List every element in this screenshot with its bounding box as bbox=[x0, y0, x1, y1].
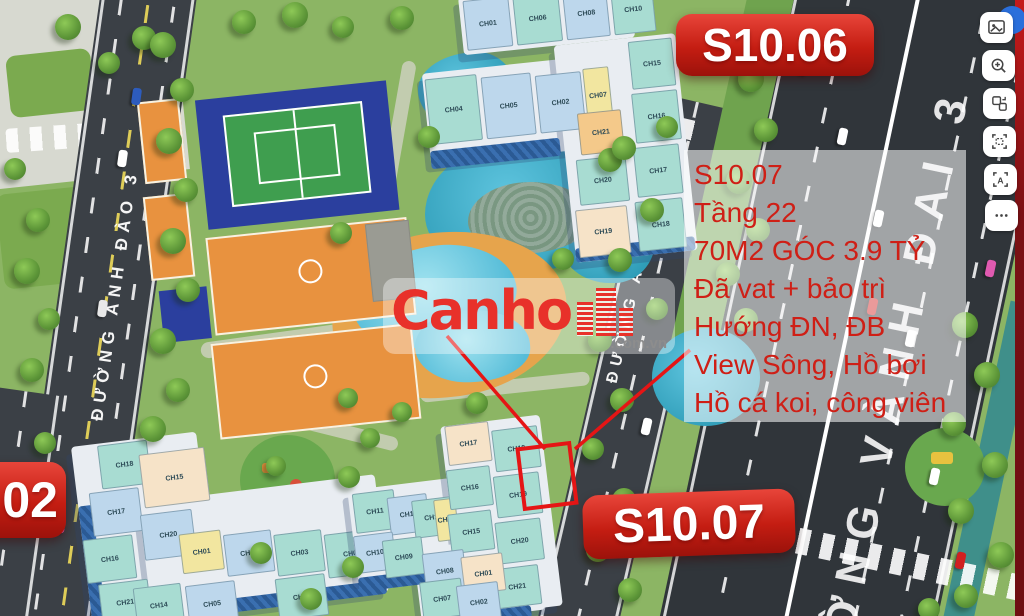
unit-cell[interactable]: CH01 bbox=[178, 529, 225, 574]
highlighted-unit-outline[interactable] bbox=[515, 441, 578, 511]
svg-text:A: A bbox=[997, 175, 1003, 185]
zoom-in-button[interactable] bbox=[982, 50, 1015, 81]
unit-cell[interactable]: CH21 bbox=[577, 109, 625, 155]
compare-tool-button[interactable] bbox=[983, 88, 1016, 119]
unit-cell[interactable]: CH19 bbox=[575, 205, 632, 258]
more-tools-button[interactable] bbox=[985, 200, 1018, 231]
info-line: Hồ cá koi, công viên bbox=[694, 384, 956, 422]
unit-cell[interactable]: CH06 bbox=[275, 573, 330, 616]
building-s10_06: CH01CH06CH08CH10CH04CH05CH02CH07CH21CH20… bbox=[414, 0, 697, 277]
watermark-buildings-icon bbox=[577, 288, 633, 336]
scan-tool-button[interactable] bbox=[983, 126, 1016, 157]
unit-cell[interactable]: CH03 bbox=[273, 529, 326, 577]
scan-icon bbox=[990, 132, 1009, 151]
unit-cell[interactable]: CH02 bbox=[223, 529, 276, 577]
unit-cell[interactable]: CH01 bbox=[462, 0, 513, 51]
unit-cell[interactable]: CH06 bbox=[512, 0, 563, 46]
banner-s10-06[interactable]: S10.06 bbox=[676, 14, 874, 76]
unit-cell[interactable]: CH15 bbox=[138, 447, 210, 509]
compare-icon bbox=[990, 94, 1009, 113]
info-line: S10.07 bbox=[694, 156, 956, 194]
unit-cell[interactable]: CH17 bbox=[444, 421, 493, 466]
unit-cell[interactable]: CH05 bbox=[481, 72, 537, 139]
unit-cell[interactable]: CH15 bbox=[447, 509, 496, 554]
unit-cell[interactable]: CH04 bbox=[424, 74, 483, 145]
watermark: Canho .com.vn bbox=[383, 278, 675, 354]
text-select-tool-button[interactable]: A bbox=[984, 164, 1017, 195]
site-plan-map[interactable]: ĐƯỜNG ANH ĐÀO 3 ĐƯỜNG ANH ĐÀO 5 ĐƯỜNG VÀ… bbox=[0, 0, 1024, 616]
unit-cell[interactable]: CH16 bbox=[631, 89, 682, 144]
unit-cell[interactable]: CH18 bbox=[634, 197, 687, 252]
right-edge-strip bbox=[1015, 0, 1024, 616]
info-line: 70M2 GÓC 3.9 TỶ bbox=[694, 232, 956, 270]
image-tool-button[interactable] bbox=[980, 12, 1013, 43]
info-line: Hướng ĐN, ĐB bbox=[694, 308, 956, 346]
more-icon bbox=[992, 206, 1011, 225]
unit-cell[interactable]: CH16 bbox=[82, 534, 137, 584]
unit-cell[interactable]: CH16 bbox=[446, 465, 495, 510]
image-icon bbox=[987, 18, 1006, 37]
text-select-icon: A bbox=[991, 170, 1010, 189]
watermark-domain: .com.vn bbox=[610, 335, 667, 352]
info-line: View Sông, Hồ bơi bbox=[694, 346, 956, 384]
unit-cell[interactable]: CH17 bbox=[633, 143, 684, 198]
banner-left-partial[interactable]: 02 bbox=[0, 462, 66, 538]
unit-cell[interactable]: CH10 bbox=[610, 0, 657, 35]
info-line: Tầng 22 bbox=[694, 194, 956, 232]
unit-cell[interactable]: CH14 bbox=[133, 583, 186, 616]
listing-info-box: S10.07 Tầng 22 70M2 GÓC 3.9 TỶ Đã vat + … bbox=[684, 150, 966, 422]
unit-cell[interactable]: CH09 bbox=[382, 536, 426, 579]
unit-cell[interactable]: CH17 bbox=[89, 487, 144, 537]
banner-s10-07[interactable]: S10.07 bbox=[582, 488, 796, 559]
unit-cell[interactable]: CH02 bbox=[456, 581, 502, 616]
zoom-in-icon bbox=[989, 56, 1008, 75]
unit-cell[interactable]: CH15 bbox=[628, 37, 677, 89]
watermark-brand: Canho bbox=[391, 280, 571, 342]
info-line: Đã vat + bảo trì bbox=[694, 270, 956, 308]
unit-cell[interactable]: CH08 bbox=[562, 0, 611, 40]
unit-cell[interactable]: CH20 bbox=[576, 155, 631, 206]
unit-cell[interactable]: CH05 bbox=[185, 580, 240, 616]
